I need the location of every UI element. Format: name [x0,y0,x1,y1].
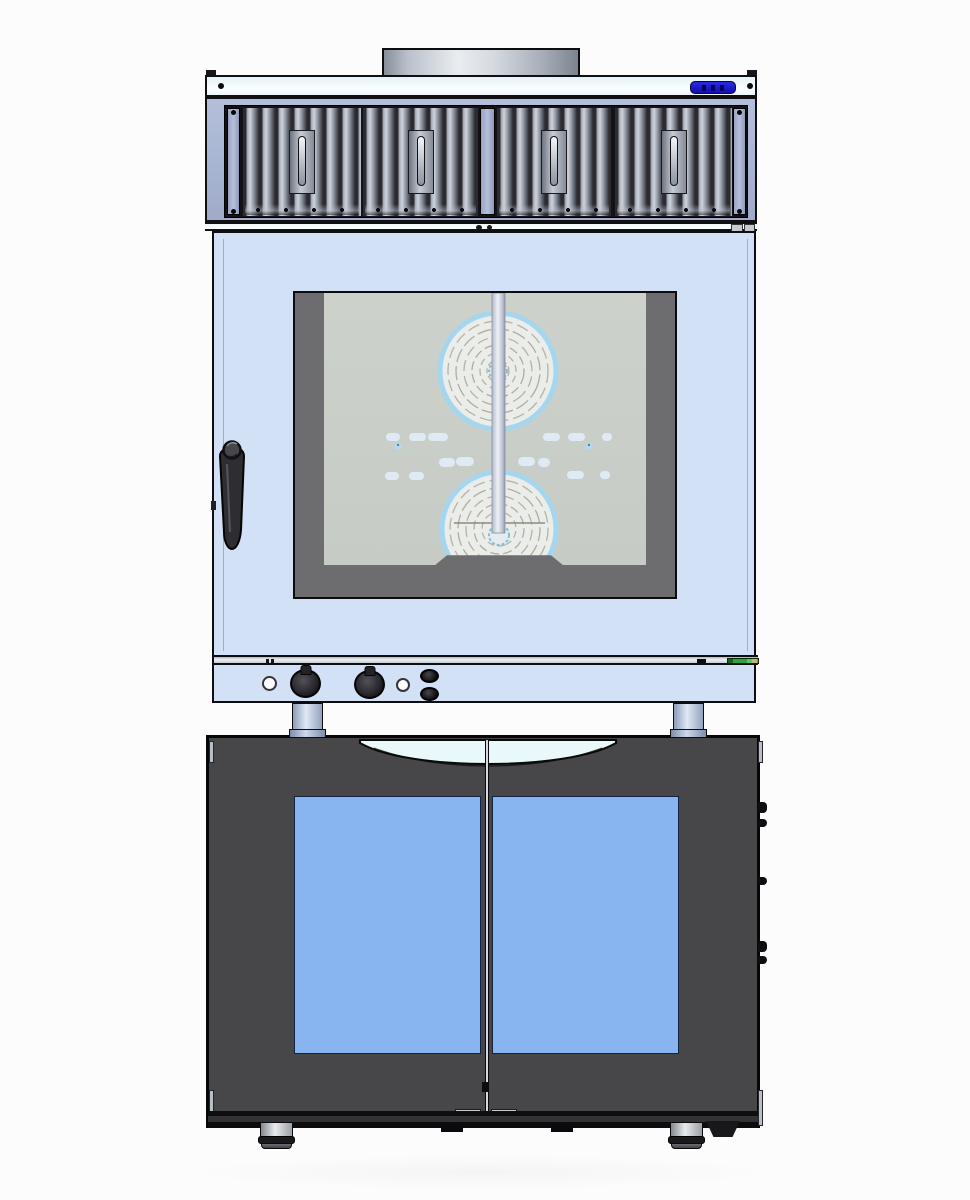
oven-interior-view [324,293,646,565]
door-latch [482,1082,489,1092]
grease-filter-panel [615,108,732,216]
lcd-segments-icon [697,85,729,91]
filter-frame-post [227,108,240,215]
timer-knob[interactable] [354,670,385,699]
adjustable-foot [668,1122,705,1149]
filter-bottom-tabs [617,204,730,215]
leg-collar [670,729,707,738]
function-button[interactable] [420,669,439,683]
filter-frame-post [480,108,495,215]
interior-sill-mound [434,554,564,566]
filter-bottom-tabs [365,204,476,215]
oven-door-window [293,291,677,599]
floor-shadow [180,1155,780,1190]
filter-handle[interactable] [670,136,678,186]
trim-mark [266,659,269,664]
rating-label [727,658,759,664]
trim-mark [271,659,274,664]
leg-shaft [292,703,323,731]
corner-trim [758,1090,763,1126]
trim-mark [697,659,706,663]
foot-cap [261,1143,292,1149]
adjustable-foot [258,1122,295,1149]
hood-top-fascia [205,75,757,97]
filter-handle[interactable] [417,136,425,186]
filter-frame-post [733,108,746,215]
foot-shaft [260,1122,293,1137]
grease-filter-bank [224,105,748,218]
base-tab [441,1126,463,1132]
hood-bottom-fascia [205,222,757,231]
filter-bottom-tabs [245,204,359,215]
indicator-lamp [396,678,410,692]
oven-leg [670,703,707,738]
door-hinge [758,819,767,827]
oven-door-handle[interactable] [216,432,252,554]
foot-cap [671,1143,702,1149]
stand-cabinet [206,735,760,1128]
exhaust-vent-pipe [382,48,580,77]
filter-bottom-tabs [499,204,609,215]
interior-lamp-tube [492,293,505,533]
oven-leg [289,703,326,738]
door-hinge [758,877,767,885]
screw-icon [737,209,742,214]
function-button[interactable] [420,687,439,701]
grease-filter-panel [363,108,478,216]
filter-handle[interactable] [550,136,558,186]
combi-oven [212,231,756,703]
door-hinge [758,941,767,952]
door-seam-line [747,239,748,651]
base-tab [551,1126,573,1132]
bolt-icon [476,225,482,230]
cabinet-door-glass-right[interactable] [492,796,679,1054]
hood-filter-housing [205,97,757,222]
leg-collar [289,729,326,738]
temperature-knob[interactable] [290,669,321,698]
bolt-icon [487,225,492,230]
grease-filter-panel [497,108,611,216]
screw-icon [747,83,753,89]
corner-trim [209,741,214,763]
cabinet-door-glass-left[interactable] [294,796,481,1054]
door-hinge [758,956,767,964]
filter-handle[interactable] [298,136,306,186]
grease-filter-panel [243,108,361,216]
foot-shaft [670,1122,703,1137]
screw-icon [218,83,224,89]
oven-door-glass [324,293,646,565]
indicator-lamp [262,676,277,691]
cabinet-door-divider [485,740,489,1126]
screw-icon [231,209,236,214]
leg-shaft [673,703,704,731]
control-fascia-trim [214,655,758,665]
condensation-hood [205,75,757,231]
hood-control-display [690,81,736,94]
screw-icon [231,110,236,115]
handle-pivot-icon [224,442,241,459]
door-hinge [758,802,767,813]
oven-assembly-rendering [0,0,970,1200]
corner-trim [758,741,763,763]
base-corner-bracket [706,1121,740,1137]
screw-icon [737,110,742,115]
